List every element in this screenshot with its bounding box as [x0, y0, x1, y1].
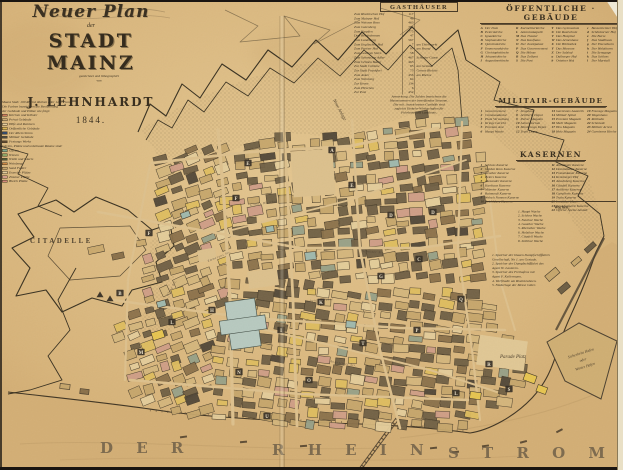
key-row: Bleich Plätze	[2, 179, 104, 183]
color-swatch	[2, 162, 8, 165]
map-title-script: Neuer Plan	[6, 2, 176, 22]
scan-edge-right	[617, 0, 623, 470]
speicher-note: 5. Niederlage der Messe Güter.	[492, 283, 622, 287]
color-swatch	[2, 114, 8, 117]
legend-label: Haupt Wache	[485, 130, 504, 134]
legend-label: Augustinerkirche	[485, 59, 509, 63]
color-swatch	[2, 149, 8, 152]
military-building-row: 18Holz Magazin	[552, 130, 587, 134]
gasthaeuser-header: GASTHÄUSER	[380, 2, 458, 12]
gasthaeuser-footnote: Fuhrleute und Landleute.	[354, 111, 484, 115]
map-title-main: STADT MAINZ	[6, 30, 176, 74]
gasthaus-note: Schuster Gasse	[415, 55, 438, 59]
legend-label: Die Post	[521, 59, 533, 63]
historical-map-canvas: AEEFFBGHIKLLMNOPQCDDRSTU Grosse BleicheL…	[0, 0, 623, 470]
map-title-von: von	[14, 78, 184, 82]
color-swatch	[2, 154, 8, 157]
public-building-row: IAugustinerkirche	[481, 59, 516, 63]
legend-oeffentliche-gebaeude: ÖFFENTLICHE · GEBÄUDE ADer DomBPeterskir…	[480, 4, 622, 100]
legend-label: Garnisons Kirche	[592, 130, 617, 134]
legend-divider	[486, 201, 616, 202]
legend-column: TDas GymnasiumUDie RealschuleVDas Hospit…	[551, 26, 587, 63]
legend-column: ADer DomBPeterskircheCIgnazkircheDStepha…	[480, 26, 516, 63]
legend-gasthaeuser: GASTHÄUSER Zum Rheinischen Hof117Zum Mai…	[354, 2, 484, 217]
wache-row: 8. Zollthor Wache	[505, 239, 619, 243]
color-key-legend: Maass Stab: 100 Rheinl. Ruthen oder 1250…	[2, 100, 104, 267]
scan-edge-left	[0, 0, 2, 470]
color-swatch	[2, 180, 8, 183]
legend-column: KKarmeliterkircheLAntoniuskapelleMDas Th…	[516, 26, 552, 63]
legend-label: Holz Magazin	[556, 130, 576, 134]
color-swatch	[2, 171, 8, 174]
color-swatch	[2, 176, 8, 179]
key-label: Bleich Plätze	[9, 179, 28, 183]
gasthaus-note: am Rheine	[415, 73, 431, 77]
color-swatch	[2, 127, 8, 130]
legend-speicher-notes: 1. Speicher der blauen Dampfschifffahrts…	[492, 253, 622, 322]
color-swatch	[2, 118, 8, 121]
scan-edge-top	[0, 0, 623, 2]
legend-column: 13Garnisons Lazareth14Militair Spital15P…	[551, 109, 587, 134]
legend-column: 1Gouvernement2Commandantur3Platz Verwalt…	[480, 109, 516, 134]
color-swatch	[2, 136, 8, 139]
public-building-row: SDie Post	[516, 59, 551, 63]
color-swatch	[2, 140, 8, 143]
military-building-row: 6Haupt Wache	[481, 130, 516, 134]
gasthaus-note: am Brand	[415, 47, 430, 51]
military-building-row: 12Train Depot	[516, 130, 551, 134]
fold-crease	[279, 16, 285, 470]
color-swatch	[2, 123, 8, 126]
legend-label: Der Marstall	[592, 59, 610, 63]
oeffentliche-header: ÖFFENTLICHE · GEBÄUDE	[480, 4, 622, 24]
legend-column: 7Zeughaus8Artillerie Depot9Pulver Magazi…	[516, 109, 552, 134]
legend-label: Train Depot	[521, 130, 538, 134]
color-swatch	[2, 158, 8, 161]
militair-header: MILITAIR-GEBÄUDE	[495, 97, 608, 107]
public-building-row: bOsteiner Hof	[552, 59, 587, 63]
legend-label: Osteiner Hof	[556, 59, 574, 63]
kasernen-header: KASERNEN	[516, 150, 586, 161]
color-swatch	[2, 132, 8, 135]
map-title-der: der	[6, 23, 176, 29]
color-swatch	[2, 167, 8, 170]
